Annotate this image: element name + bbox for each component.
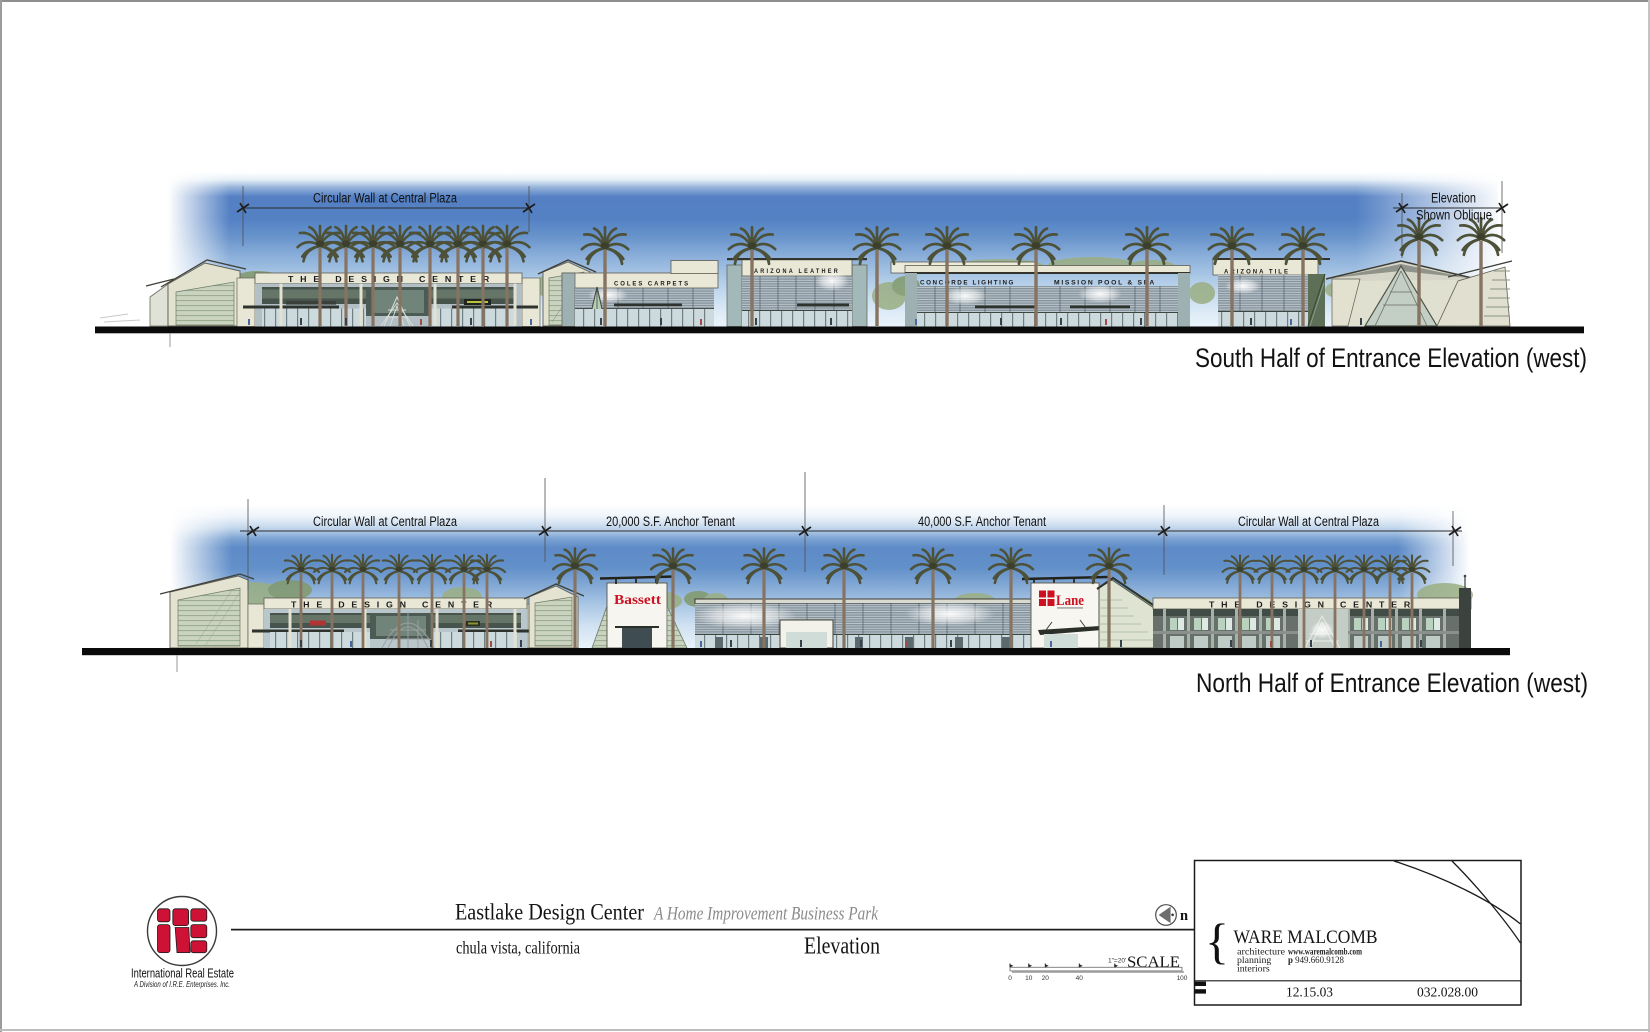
svg-text:20,000 S.F. Anchor Tenant: 20,000 S.F. Anchor Tenant — [606, 514, 735, 529]
svg-text:0: 0 — [1008, 975, 1012, 982]
svg-text:South Half of Entrance Elevati: South Half of Entrance Elevation (west) — [1195, 343, 1587, 373]
svg-text:THE DESIGN CENTER: THE DESIGN CENTER — [291, 601, 499, 610]
svg-text:interiors: interiors — [1237, 964, 1270, 975]
svg-text:Circular Wall at Central Plaza: Circular Wall at Central Plaza — [313, 514, 457, 529]
svg-text:10: 10 — [1025, 975, 1033, 982]
svg-text:n: n — [1180, 908, 1188, 924]
svg-text:{: { — [1205, 913, 1229, 969]
svg-text:chula vista, california: chula vista, california — [456, 938, 580, 958]
svg-text:Elevation: Elevation — [1431, 191, 1476, 206]
svg-text:COLES CARPETS: COLES CARPETS — [614, 281, 690, 288]
svg-text:ARIZONA LEATHER: ARIZONA LEATHER — [754, 268, 840, 275]
svg-text:Circular Wall at Central Plaza: Circular Wall at Central Plaza — [313, 191, 457, 206]
svg-text:Lane: Lane — [1056, 593, 1085, 609]
svg-text:Elevation: Elevation — [804, 934, 880, 960]
svg-text:p 949.660.9128: p 949.660.9128 — [1288, 955, 1344, 966]
svg-text:MISSION POOL & SPA: MISSION POOL & SPA — [1054, 281, 1156, 287]
svg-text:12.15.03: 12.15.03 — [1286, 985, 1333, 1000]
svg-text:A Home Improvement Business Pa: A Home Improvement Business Park — [652, 905, 878, 925]
svg-text:ARIZONA TILE: ARIZONA TILE — [1224, 270, 1290, 276]
svg-text:CONCORDE LIGHTING: CONCORDE LIGHTING — [920, 281, 1015, 287]
svg-text:40: 40 — [1076, 975, 1084, 982]
svg-text:International Real Estate: International Real Estate — [131, 967, 234, 981]
svg-text:1"=20': 1"=20' — [1108, 958, 1126, 965]
svg-text:A Division of I.R.E. Enterpris: A Division of I.R.E. Enterprises. Inc. — [133, 980, 230, 989]
svg-text:Circular Wall at Central Plaza: Circular Wall at Central Plaza — [1238, 514, 1379, 529]
svg-text:Bassett: Bassett — [614, 592, 662, 607]
svg-text:20: 20 — [1042, 975, 1050, 982]
svg-text:Shown Oblique: Shown Oblique — [1416, 208, 1492, 223]
svg-text:North Half of Entrance Elevati: North Half of Entrance Elevation (west) — [1196, 668, 1588, 698]
svg-text:100: 100 — [1177, 975, 1188, 982]
svg-text:WARE MALCOMB: WARE MALCOMB — [1234, 928, 1378, 948]
svg-text:40,000 S.F. Anchor Tenant: 40,000 S.F. Anchor Tenant — [918, 514, 1046, 529]
svg-text:Eastlake Design Center: Eastlake Design Center — [455, 900, 644, 926]
svg-text:032.028.00: 032.028.00 — [1417, 985, 1478, 1000]
